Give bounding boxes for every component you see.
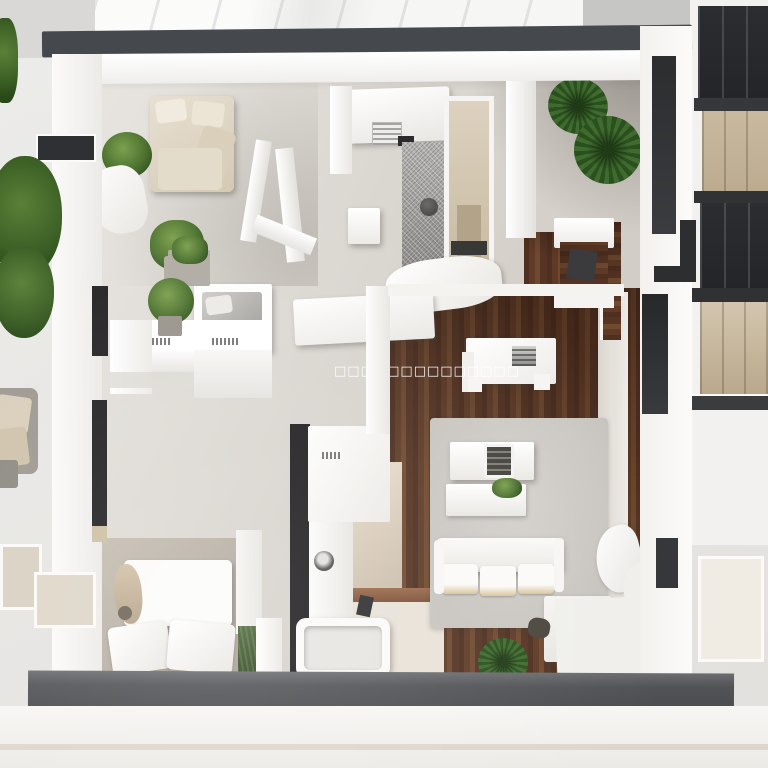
- building-panel-beige-1: [702, 111, 768, 191]
- door-narrow-panel: [309, 522, 353, 628]
- building-window-mid: [700, 203, 768, 288]
- hanging-planter-greens: [172, 236, 208, 264]
- building-slab-1: [694, 98, 768, 111]
- long-white-counter: [293, 292, 435, 345]
- door-micro-label: [322, 452, 342, 459]
- bedside-lamp-dot: [118, 606, 132, 620]
- sofa-cushion-3: [518, 564, 554, 594]
- right-wall-slot-bottom: [656, 538, 678, 588]
- patio-pot: [0, 460, 18, 488]
- bed-topleft-pillow-1: [155, 98, 188, 124]
- building-slab-3: [692, 288, 768, 302]
- shelf-topright-dark-object: [566, 248, 598, 282]
- building-panel-beige-2: [700, 302, 768, 394]
- wall-kitchen-left: [330, 86, 352, 174]
- apartment-floorplan-render: □□□□□□□□□□□□□□: [0, 0, 768, 768]
- top-wall-white-band: [58, 50, 690, 84]
- wardrobe-panel: [256, 618, 282, 676]
- shelf-plant: [492, 478, 522, 498]
- building-recess-lower: [698, 556, 764, 662]
- sofa-cushion-2: [480, 566, 516, 596]
- sofa-armrest-left: [434, 540, 444, 594]
- left-wall-window-slot: [36, 134, 96, 162]
- tall-cabinet-dark-band: [451, 241, 487, 255]
- corner-plant-topleft: [0, 18, 18, 103]
- bottom-exterior-band: [0, 706, 768, 768]
- small-side-table: [348, 208, 380, 244]
- bottom-beige-line: [0, 744, 768, 750]
- garbled-glyph-row: □□□□□□□□□□□□□□: [334, 364, 490, 384]
- bed2-pillow-2: [166, 619, 236, 675]
- cabinet-unit-return: [194, 350, 272, 398]
- sofa-armrest-right: [554, 538, 564, 592]
- bathtub-basin: [304, 626, 382, 670]
- left-wall-black-strip-2: [92, 400, 107, 532]
- desk-leg-2: [534, 374, 550, 390]
- wall-wood-top-sill: [388, 284, 624, 296]
- shelf-topright-lip: [554, 296, 614, 308]
- wall-wood-left-edge: [366, 286, 390, 434]
- building-slab-2: [694, 191, 768, 203]
- exterior-tree-bottom: [0, 246, 54, 338]
- bedding-pillow: [205, 294, 233, 315]
- left-wall-window-recess-2: [34, 572, 96, 628]
- kitchen-sink-dot: [420, 198, 438, 216]
- left-wall-strip-cap: [92, 526, 107, 542]
- sofa-cushion-1: [442, 564, 478, 594]
- right-wall-slot-L-vertical: [680, 220, 696, 282]
- drawer-stack: [484, 444, 514, 478]
- cabinet-micro-label-2: [212, 338, 240, 345]
- potted-plant-pot: [158, 316, 182, 336]
- right-wall-slot-mid: [642, 294, 668, 414]
- wall-kitchen-right: [506, 56, 536, 238]
- building-slab-4: [690, 394, 768, 410]
- white-door-panel: [308, 426, 390, 522]
- door-knob: [314, 551, 334, 571]
- right-wall-slot-top: [652, 56, 676, 234]
- left-wall-black-strip-1: [92, 286, 108, 356]
- bed-topleft-cushion: [158, 148, 222, 190]
- desk-monitor: [512, 346, 536, 366]
- bathtub: [296, 618, 390, 678]
- bed-topleft-pillow-2: [191, 100, 225, 127]
- bed2-pillow-1: [107, 620, 173, 676]
- building-window-upper: [698, 6, 768, 98]
